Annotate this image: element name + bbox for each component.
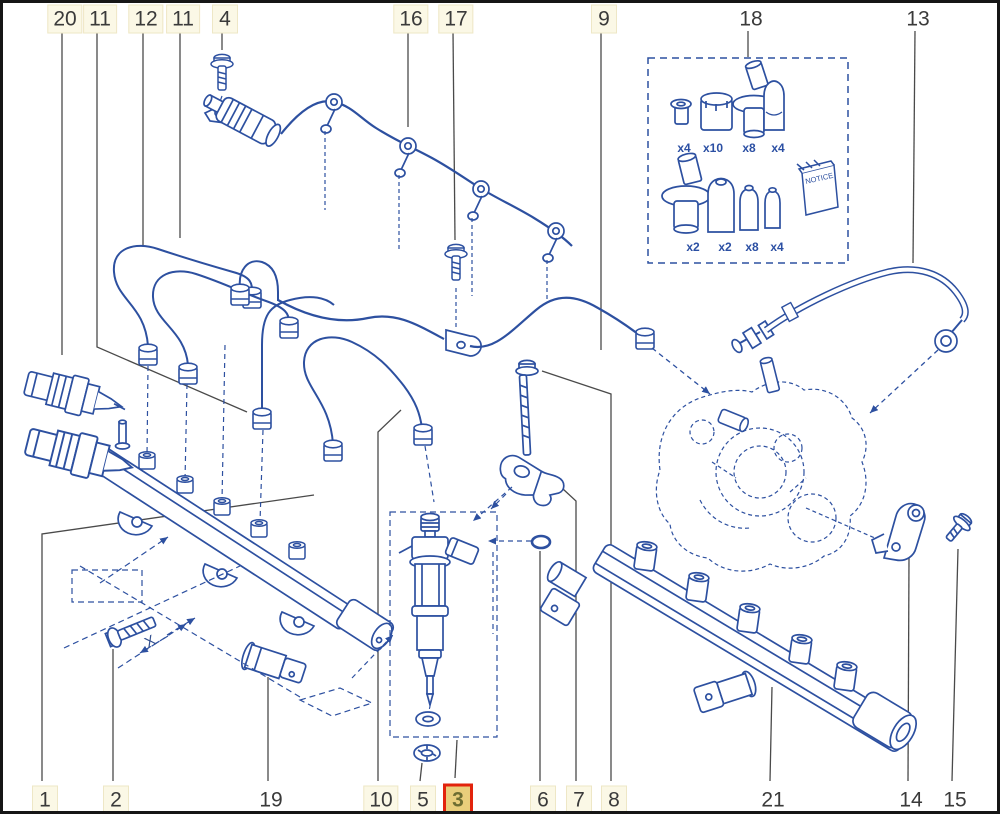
o-ring-6 — [532, 536, 550, 548]
part-callout-11[interactable]: 11 — [166, 5, 200, 34]
clamp-bolt-8 — [516, 360, 538, 455]
leader-line-7 — [563, 489, 576, 781]
part-callout-2[interactable]: 2 — [103, 786, 129, 814]
leader-line-1 — [42, 495, 314, 781]
service-parts-box: NOTICE — [648, 58, 848, 263]
cap-medium-count: x2 — [718, 240, 731, 254]
leader-line-21 — [770, 687, 772, 781]
part-callout-9[interactable]: 9 — [591, 5, 617, 34]
part-callout-4[interactable]: 4 — [212, 5, 238, 34]
bolt-4-icon — [211, 54, 233, 90]
part-callout-17[interactable]: 17 — [438, 5, 473, 34]
cap-tall-count: x4 — [771, 141, 784, 155]
sensor-19 — [239, 641, 308, 687]
x-dimension-mark: X — [142, 632, 159, 652]
part-callout-15[interactable]: 15 — [937, 786, 972, 814]
leader-line-17 — [453, 31, 455, 240]
part-callout-19[interactable]: 19 — [253, 786, 288, 814]
injector-clamp-fork-7 — [494, 453, 569, 510]
sealing-plug-flanged-large-count: x2 — [686, 240, 699, 254]
cap-tall-icon — [764, 81, 784, 130]
parts-diagram-stage: NOTICE — [0, 0, 1000, 814]
rail-sensor — [693, 670, 758, 713]
injector-pipes-drawing — [114, 246, 434, 522]
injector-assembly-drawing — [352, 360, 568, 761]
leader-line-13 — [913, 31, 915, 263]
part-callout-1[interactable]: 1 — [32, 786, 58, 814]
cap-xsmall-icon — [765, 188, 780, 228]
fuel-hose-drawing — [730, 270, 965, 413]
sealing-plug-flanged-count: x8 — [742, 141, 755, 155]
part-callout-21[interactable]: 21 — [755, 786, 790, 814]
injector-washer — [416, 712, 440, 726]
pump-feed-pipe-drawing — [231, 261, 710, 394]
part-callout-20[interactable]: 20 — [47, 5, 82, 34]
leader-line-15 — [952, 549, 958, 781]
part-callout-14[interactable]: 14 — [893, 786, 928, 814]
return-line-connectors — [321, 94, 564, 262]
exploded-parts-drawing: NOTICE — [3, 3, 997, 811]
rail-stud — [116, 420, 130, 449]
right-fuel-rail-drawing — [540, 541, 922, 755]
leader-lines — [42, 31, 958, 781]
support-bracket-14 — [872, 504, 925, 561]
part-callout-13[interactable]: 13 — [900, 5, 935, 34]
cap-xsmall-count: x4 — [770, 240, 783, 254]
injection-pump-ghost-drawing — [656, 357, 884, 572]
part-callout-6[interactable]: 6 — [530, 786, 556, 814]
leader-line-14 — [908, 558, 909, 781]
sealing-washer-5 — [414, 745, 440, 761]
part-callout-7[interactable]: 7 — [566, 786, 592, 814]
screw-17-icon — [445, 244, 467, 280]
cap-small-count: x8 — [745, 240, 758, 254]
bracket-bolt-15 — [941, 510, 976, 546]
cap-medium-icon — [708, 179, 734, 233]
pressure-sensor-20 — [22, 364, 130, 426]
plug-cap-small-icon — [671, 100, 691, 125]
part-callout-3-selected[interactable]: 3 — [443, 784, 473, 814]
plug-cap-small-count: x4 — [677, 141, 690, 155]
part-callout-5[interactable]: 5 — [410, 786, 436, 814]
plug-cap-medium-icon — [701, 93, 732, 130]
plug-cap-medium-count: x10 — [703, 141, 723, 155]
injector-body — [399, 514, 479, 706]
part-callout-8[interactable]: 8 — [601, 786, 627, 814]
leader-line-3 — [455, 740, 457, 778]
sealing-plug-flanged-large-icon — [662, 152, 710, 233]
part-callout-12[interactable]: 12 — [128, 5, 163, 34]
cap-small-icon — [740, 186, 758, 231]
notice-booklet-icon: NOTICE — [797, 160, 838, 215]
part-callout-16[interactable]: 16 — [393, 5, 428, 34]
leader-line-5 — [420, 763, 422, 781]
part-callout-18[interactable]: 18 — [733, 5, 768, 34]
part-callout-10[interactable]: 10 — [363, 786, 398, 814]
left-fuel-rail-drawing: X — [22, 364, 397, 716]
part-callout-11[interactable]: 11 — [83, 5, 117, 34]
